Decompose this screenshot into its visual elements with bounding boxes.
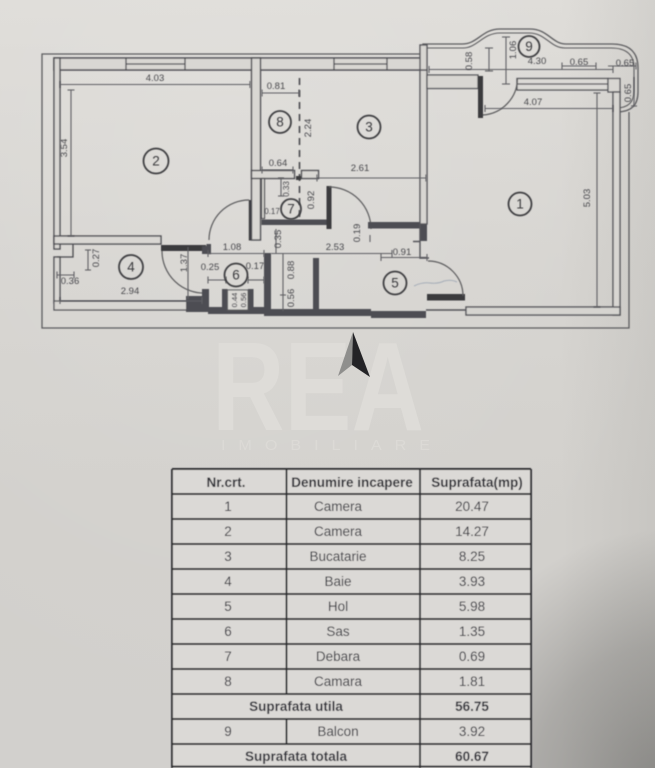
svg-text:0.36: 0.36 — [61, 276, 80, 287]
svg-text:IMOBILIARE: IMOBILIARE — [221, 437, 443, 454]
svg-text:0.65: 0.65 — [623, 84, 634, 103]
svg-text:5: 5 — [391, 276, 399, 291]
svg-text:Balcon: Balcon — [317, 724, 358, 739]
svg-text:4: 4 — [224, 574, 232, 589]
svg-text:4: 4 — [127, 260, 135, 275]
svg-text:Denumire incapere: Denumire incapere — [291, 475, 413, 490]
svg-text:0.65: 0.65 — [616, 58, 635, 69]
svg-text:1.37: 1.37 — [179, 254, 190, 273]
svg-text:3.92: 3.92 — [459, 724, 485, 739]
svg-text:0.33: 0.33 — [282, 181, 291, 197]
svg-text:2.24: 2.24 — [303, 119, 314, 138]
svg-text:8: 8 — [276, 115, 284, 130]
svg-text:2.61: 2.61 — [351, 163, 370, 174]
svg-text:7: 7 — [287, 202, 295, 217]
svg-text:Suprafata utila: Suprafata utila — [249, 699, 343, 714]
svg-text:5.03: 5.03 — [582, 189, 593, 208]
svg-text:20.47: 20.47 — [455, 499, 489, 514]
svg-text:2: 2 — [224, 524, 232, 539]
svg-text:56.75: 56.75 — [455, 699, 489, 714]
svg-text:0.44: 0.44 — [230, 293, 239, 308]
svg-text:0.69: 0.69 — [459, 649, 485, 664]
svg-text:0.81: 0.81 — [267, 81, 286, 92]
svg-text:Debara: Debara — [316, 649, 361, 664]
svg-text:5: 5 — [224, 599, 232, 614]
svg-text:8: 8 — [224, 674, 232, 689]
svg-text:1.06: 1.06 — [508, 41, 519, 60]
svg-text:3.54: 3.54 — [59, 139, 70, 158]
svg-text:0.64: 0.64 — [269, 158, 288, 169]
svg-text:3.93: 3.93 — [459, 574, 485, 589]
svg-text:0.27: 0.27 — [91, 249, 102, 268]
svg-text:1: 1 — [224, 499, 232, 514]
svg-text:0.88: 0.88 — [286, 261, 297, 280]
svg-text:0.56: 0.56 — [239, 293, 248, 308]
svg-text:7: 7 — [224, 649, 232, 664]
svg-text:Suprafata(mp): Suprafata(mp) — [431, 475, 523, 490]
svg-text:Sas: Sas — [326, 624, 350, 639]
svg-text:4.07: 4.07 — [524, 97, 543, 108]
svg-text:Bucatarie: Bucatarie — [309, 549, 366, 564]
svg-text:0.17: 0.17 — [264, 207, 280, 216]
svg-text:REA: REA — [212, 316, 424, 457]
svg-text:14.27: 14.27 — [455, 524, 489, 539]
svg-text:0.25: 0.25 — [201, 262, 220, 273]
svg-text:8.25: 8.25 — [459, 549, 485, 564]
svg-text:Nr.crt.: Nr.crt. — [206, 475, 245, 490]
svg-text:0.65: 0.65 — [570, 57, 589, 68]
svg-text:1.81: 1.81 — [459, 674, 485, 689]
svg-text:1.35: 1.35 — [459, 624, 485, 639]
svg-text:2: 2 — [152, 154, 160, 169]
svg-text:1.08: 1.08 — [223, 242, 242, 253]
svg-text:Suprafata totala: Suprafata totala — [245, 749, 348, 764]
svg-text:2.53: 2.53 — [326, 242, 345, 253]
svg-text:0.17: 0.17 — [246, 261, 265, 272]
svg-text:0.35: 0.35 — [273, 230, 284, 249]
svg-text:Camara: Camara — [314, 674, 363, 689]
svg-text:Camera: Camera — [314, 524, 363, 539]
svg-text:2.94: 2.94 — [121, 286, 140, 297]
svg-text:Hol: Hol — [328, 599, 348, 614]
svg-text:Baie: Baie — [324, 574, 351, 589]
svg-text:0.56: 0.56 — [286, 289, 297, 308]
svg-text:0.19: 0.19 — [352, 224, 363, 243]
svg-text:1: 1 — [516, 197, 524, 212]
svg-text:3: 3 — [365, 120, 373, 135]
svg-text:9: 9 — [525, 39, 533, 54]
svg-text:3: 3 — [224, 549, 232, 564]
svg-text:4.03: 4.03 — [146, 73, 165, 84]
svg-text:6: 6 — [232, 268, 240, 283]
svg-text:6: 6 — [224, 624, 232, 639]
svg-text:Camera: Camera — [314, 499, 363, 514]
svg-text:0.58: 0.58 — [464, 52, 475, 71]
svg-text:60.67: 60.67 — [455, 749, 489, 764]
svg-text:0.91: 0.91 — [393, 247, 412, 258]
svg-text:9: 9 — [224, 724, 232, 739]
svg-text:0.92: 0.92 — [306, 191, 317, 210]
svg-text:5.98: 5.98 — [459, 599, 485, 614]
